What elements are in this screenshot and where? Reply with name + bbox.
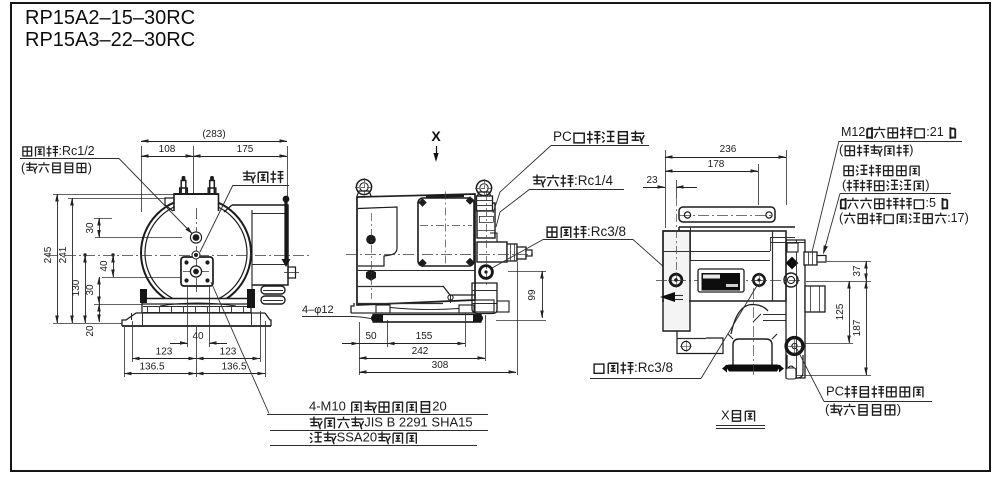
svg-text:): ) <box>897 402 901 417</box>
svg-text::Rc1/2: :Rc1/2 <box>59 144 95 158</box>
svg-text:M12: M12 <box>841 125 865 139</box>
svg-text:): ) <box>925 178 929 192</box>
svg-text:136.5: 136.5 <box>221 362 246 373</box>
svg-text::21: :21 <box>926 125 943 139</box>
svg-text:23: 23 <box>646 175 658 186</box>
svg-text:4-M10: 4-M10 <box>309 399 346 414</box>
svg-text:30: 30 <box>85 284 96 296</box>
svg-text:SSA20: SSA20 <box>337 430 377 445</box>
svg-text:308: 308 <box>432 360 449 371</box>
svg-text:245: 245 <box>43 246 54 263</box>
svg-text:(: ( <box>825 402 830 417</box>
svg-text:(283): (283) <box>202 129 225 140</box>
svg-text::Rc3/8: :Rc3/8 <box>634 360 673 375</box>
svg-text:130: 130 <box>71 279 82 296</box>
svg-text:): ) <box>88 161 92 175</box>
svg-text:): ) <box>909 143 913 157</box>
svg-text:155: 155 <box>416 331 433 342</box>
svg-text:4–φ12: 4–φ12 <box>302 304 334 316</box>
svg-text::5: :5 <box>926 196 936 210</box>
svg-text:X: X <box>721 408 730 423</box>
svg-text:40: 40 <box>192 331 204 342</box>
svg-text:37: 37 <box>852 265 863 277</box>
svg-text:20: 20 <box>432 399 446 414</box>
svg-text:30: 30 <box>85 222 96 234</box>
svg-text:175: 175 <box>237 144 254 155</box>
svg-text:241: 241 <box>58 246 69 263</box>
svg-text:108: 108 <box>159 144 176 155</box>
svg-text:242: 242 <box>412 346 429 357</box>
svg-text::Rc1/4: :Rc1/4 <box>574 173 614 188</box>
svg-text::17): :17) <box>947 211 969 225</box>
svg-text:RP15A3–22–30RC: RP15A3–22–30RC <box>25 29 195 51</box>
svg-text:136.5: 136.5 <box>139 362 164 373</box>
svg-text:PC: PC <box>553 129 572 144</box>
svg-text:125: 125 <box>835 303 846 320</box>
svg-text:50: 50 <box>365 331 377 342</box>
svg-text:X: X <box>431 128 441 144</box>
svg-text:123: 123 <box>156 347 173 358</box>
svg-text:20: 20 <box>85 325 96 337</box>
svg-text:40: 40 <box>99 260 110 272</box>
svg-text:187: 187 <box>852 319 863 336</box>
svg-text:99: 99 <box>527 289 538 301</box>
svg-text:123: 123 <box>220 347 237 358</box>
svg-text:178: 178 <box>708 159 725 170</box>
svg-text:JIS B 2291 SHA15: JIS B 2291 SHA15 <box>364 415 472 430</box>
svg-text:PC: PC <box>826 384 844 399</box>
svg-text::Rc3/8: :Rc3/8 <box>587 224 626 239</box>
svg-text:RP15A2–15–30RC: RP15A2–15–30RC <box>25 7 195 29</box>
svg-text:236: 236 <box>720 144 737 155</box>
